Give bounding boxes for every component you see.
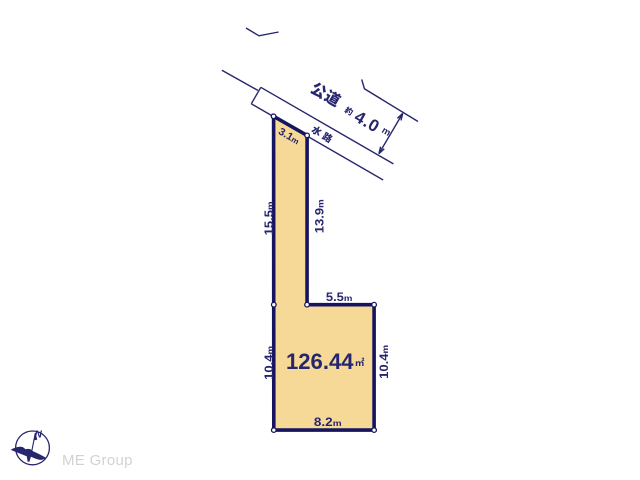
svg-text:10.4m: 10.4m [379, 344, 391, 378]
svg-text:ME Group: ME Group [62, 452, 133, 469]
svg-text:10.4m: 10.4m [264, 345, 276, 379]
svg-text:N: N [35, 429, 43, 440]
svg-text:126.44: 126.44 [286, 349, 354, 374]
svg-text:15.5m: 15.5m [264, 201, 276, 235]
svg-text:13.9m: 13.9m [314, 199, 326, 233]
svg-text:5.5m: 5.5m [326, 292, 353, 304]
svg-text:8.2m: 8.2m [314, 417, 342, 429]
